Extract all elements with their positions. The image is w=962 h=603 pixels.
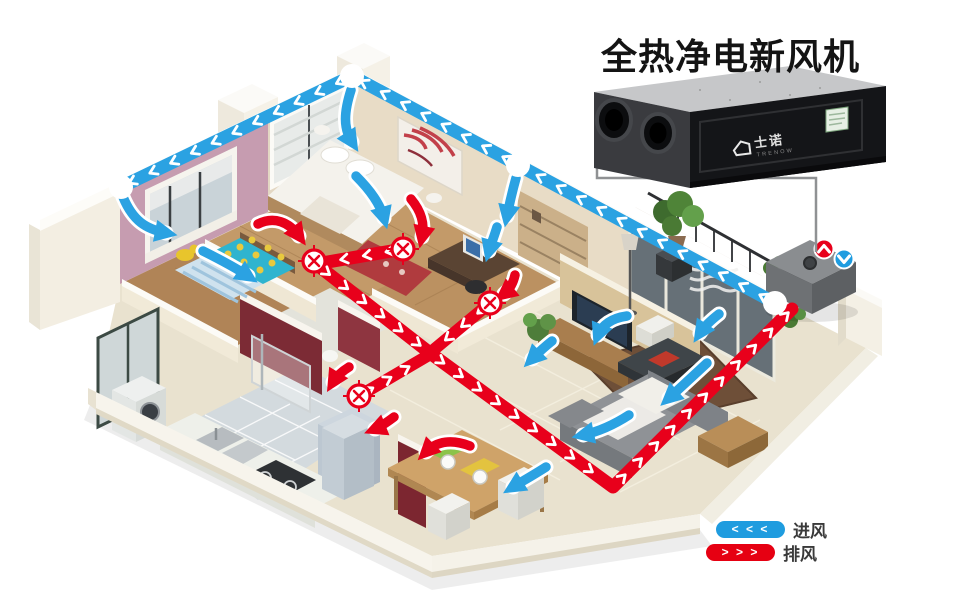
pillow [321,147,349,163]
desk-chair [465,280,487,294]
supply-vent-icon [763,291,787,315]
fridge [322,414,374,500]
plate [441,455,455,469]
ventilation-diagram: 士诺 TRENOW 全热净电新风机 < < < 进风 > > > 排风 [0,0,962,603]
unit-port [804,257,816,269]
exhaust-chevrons: > > > [722,544,760,561]
plate [473,470,487,484]
exhaust-pill-icon: > > > [706,544,775,561]
supply-vent-icon [109,175,133,199]
intake-in-badge [835,250,854,269]
flow-legend: < < < 进风 > > > 排风 [706,518,827,564]
supply-vent-icon [340,64,364,88]
intake-chevrons: < < < [732,521,770,538]
intake-label: 进风 [793,517,827,542]
legend-exhaust-row: > > > 排风 [706,541,827,563]
legend-intake-row: < < < 进风 [716,518,827,540]
scene-svg: 士诺 TRENOW [0,0,962,603]
product-image: 士诺 TRENOW [594,66,886,188]
left-outer-wall [29,182,120,330]
exhaust-out-badge [815,240,834,259]
supply-vent-icon [506,153,530,177]
page-title: 全热净电新风机 [601,28,901,80]
nightstand [314,125,330,135]
exhaust-label: 排风 [783,540,817,565]
toilet [322,350,338,362]
nightstand [426,193,442,203]
intake-pill-icon: < < < [716,521,785,538]
